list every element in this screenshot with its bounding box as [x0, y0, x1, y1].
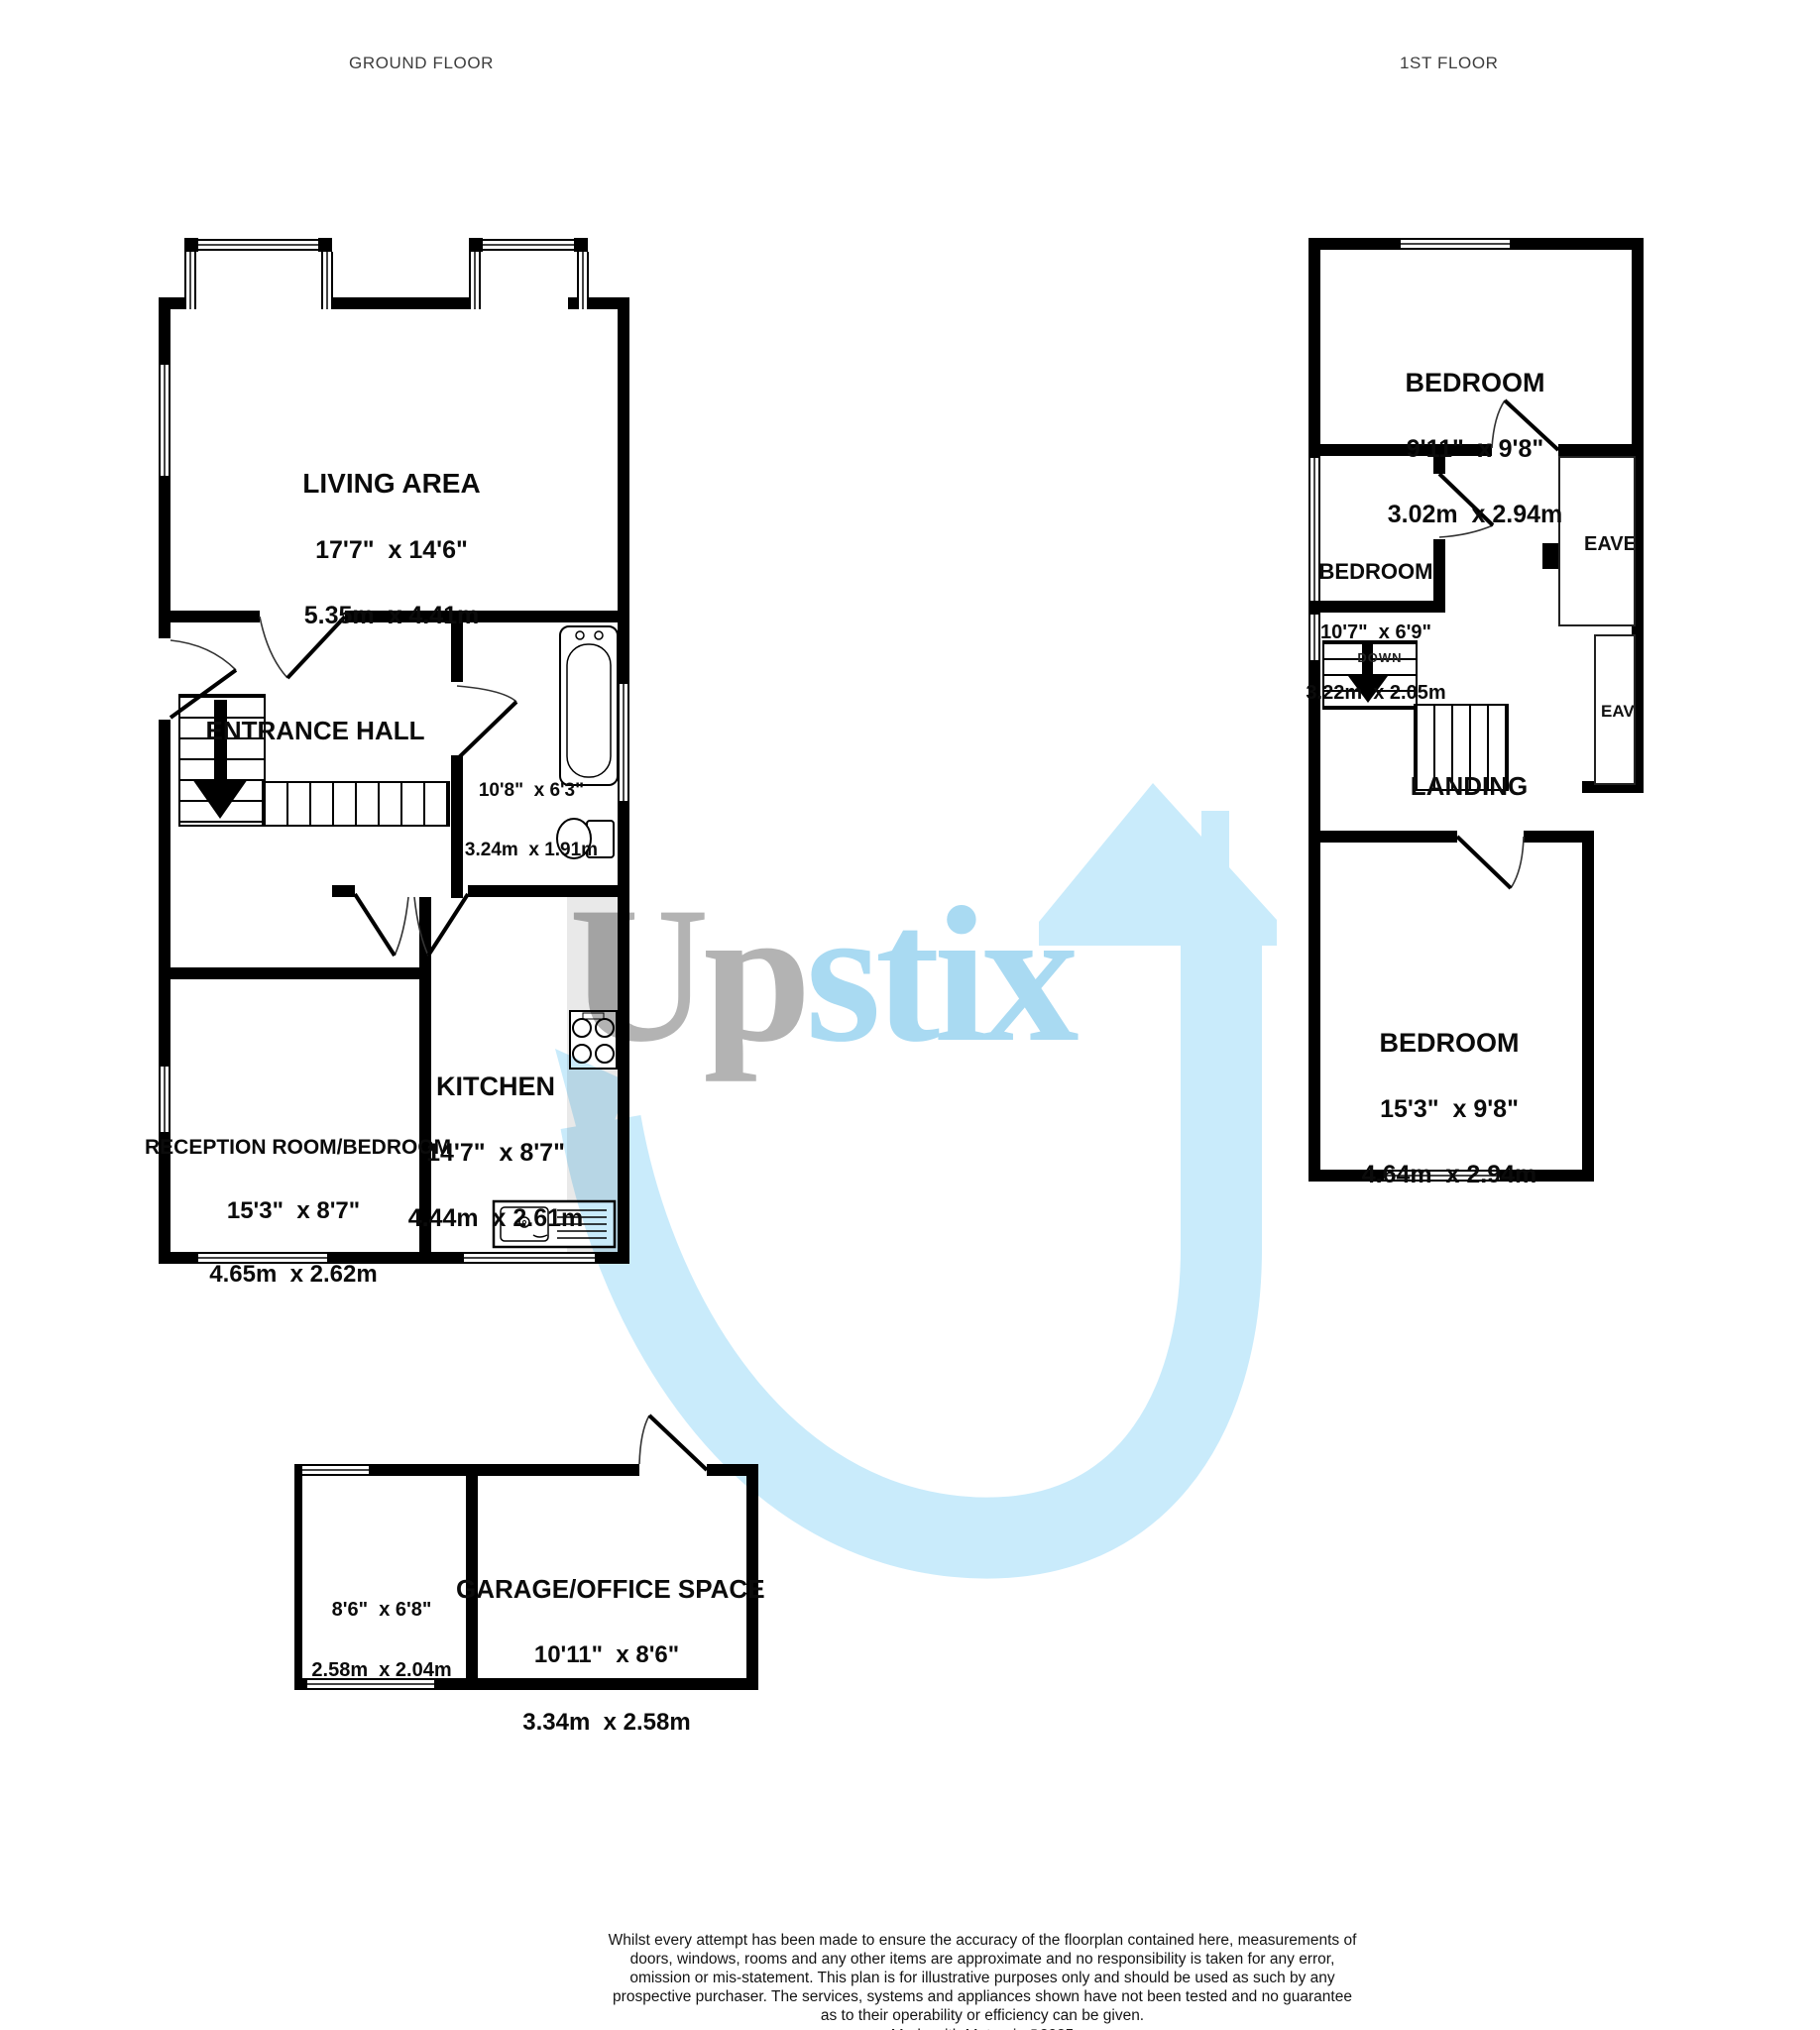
living-area-label: LIVING AREA 17'7" x 14'6" 5.35m x 4.41m: [233, 432, 550, 666]
upstix-watermark: Upstix: [535, 733, 1338, 1606]
eaves-lower-area: EAVES: [1594, 634, 1636, 785]
watermark-brand: Upstix: [569, 878, 1074, 1072]
window: [184, 252, 196, 309]
bedroom3-door: [1457, 837, 1524, 888]
window: [159, 365, 171, 476]
bedroom3-label: BEDROOM 15'3" x 9'8" 4.64m x 2.94m: [1301, 991, 1598, 1225]
room-dims-imperial: 17'7" x 14'6": [233, 535, 550, 565]
brand-prefix: Up: [569, 867, 806, 1082]
stairs-up-treads: [262, 781, 450, 827]
bay-post: [184, 238, 198, 252]
metropix-credit: Made with Metropix ©2025: [605, 2026, 1360, 2030]
eaves-label: EAVES: [1601, 702, 1636, 722]
room-name: BEDROOM: [1326, 367, 1624, 398]
window: [577, 252, 589, 309]
room-dims-imperial: 8'6" x 6'8": [283, 1598, 481, 1623]
brand-suffix: stix: [806, 867, 1074, 1082]
window: [321, 252, 333, 309]
bay-post: [469, 238, 483, 252]
floorplan-page: GROUND FLOOR 1ST FLOOR: [0, 0, 1820, 2030]
wall: [159, 967, 419, 979]
room-name: BEDROOM: [1301, 1027, 1598, 1059]
room-dims-imperial: 15'3" x 9'8": [1301, 1094, 1598, 1124]
ground-floor-title: GROUND FLOOR: [349, 54, 494, 73]
room-dims-imperial: 15'3" x 8'7": [145, 1197, 442, 1225]
room-name: LIVING AREA: [233, 468, 550, 500]
room-dims-metric: 4.64m x 2.94m: [1301, 1160, 1598, 1189]
room-name: ENTRANCE HALL: [167, 716, 464, 745]
wall: [332, 885, 355, 897]
window: [198, 239, 318, 251]
garage-store-label: 8'6" x 6'8" 2.58m x 2.04m: [283, 1562, 481, 1719]
reception-room-label: RECEPTION ROOM/BEDROOM 15'3" x 8'7" 4.65…: [145, 1098, 442, 1324]
room-name: RECEPTION ROOM/BEDROOM: [145, 1134, 442, 1162]
bay-post: [574, 238, 588, 252]
entrance-hall-label: ENTRANCE HALL: [167, 680, 464, 781]
room-dims-metric: 4.65m x 2.62m: [145, 1261, 442, 1289]
room-dims-imperial: 10'11" x 8'6": [456, 1639, 757, 1671]
landing-label: LANDING: [1370, 735, 1568, 837]
room-dims-imperial: 9'11" x 9'8": [1326, 434, 1624, 464]
window: [483, 239, 574, 251]
window: [1401, 238, 1510, 250]
room-dims-metric: 5.35m x 4.41m: [233, 601, 550, 630]
arrow-house-head: [1039, 783, 1277, 946]
room-dims-metric: 3.34m x 2.58m: [456, 1707, 757, 1739]
wall: [326, 297, 475, 309]
footer-disclaimer: Whilst every attempt has been made to en…: [605, 1931, 1360, 2030]
watermark-arrow-icon: [535, 733, 1338, 1606]
window: [302, 1464, 369, 1476]
room-name: LANDING: [1370, 771, 1568, 801]
down-label: DOWN: [1340, 615, 1420, 702]
disclaimer-text: Whilst every attempt has been made to en…: [605, 1931, 1360, 2025]
window: [469, 252, 481, 309]
first-floor-title: 1ST FLOOR: [1400, 54, 1499, 73]
kitchen-double-doors: [355, 894, 468, 956]
stairs-arrow-head: [192, 779, 248, 819]
room-name: BEDROOM: [1277, 559, 1475, 585]
room-dims-metric: 2.58m x 2.04m: [283, 1658, 481, 1683]
bay-post: [318, 238, 332, 252]
